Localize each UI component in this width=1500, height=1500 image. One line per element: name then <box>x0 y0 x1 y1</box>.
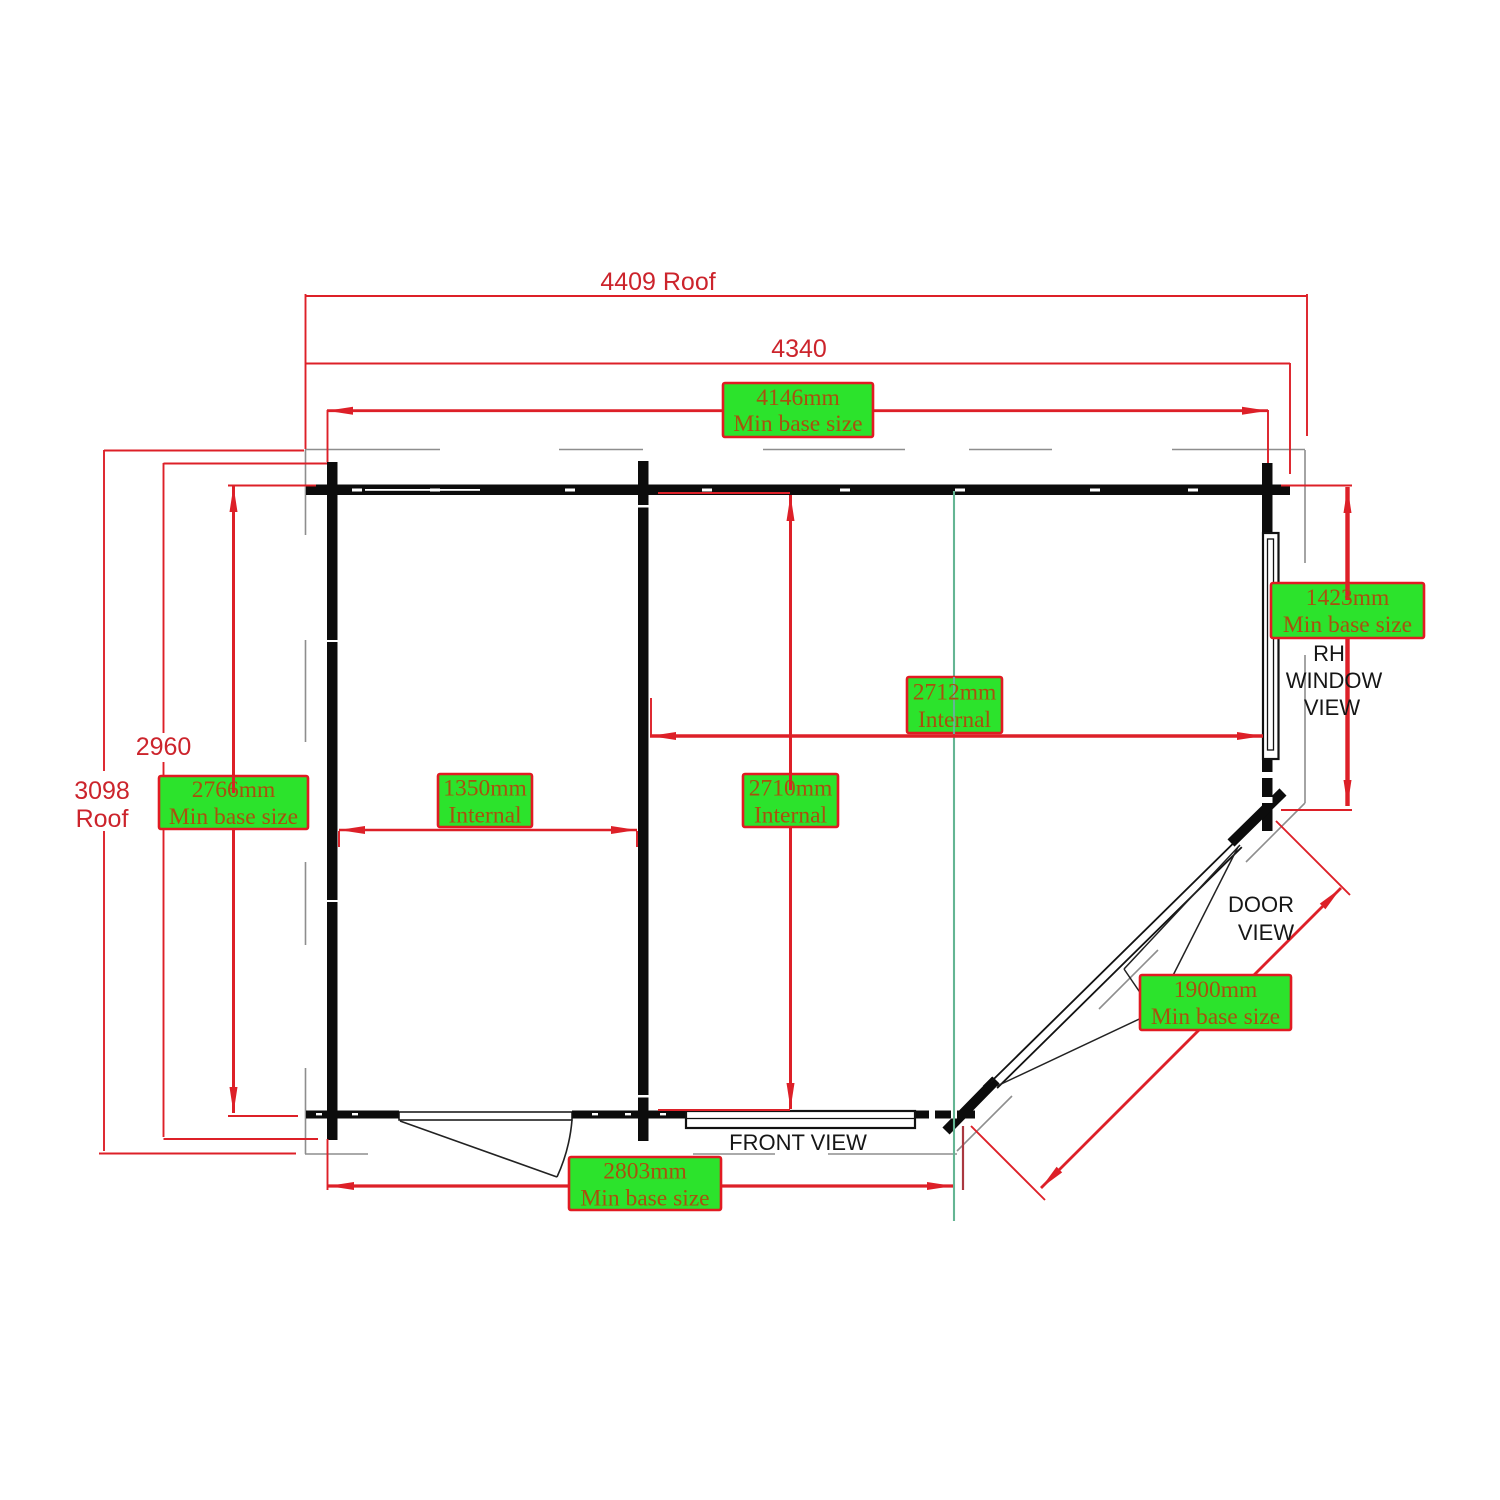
svg-text:4340: 4340 <box>771 335 827 363</box>
svg-text:Min base size: Min base size <box>1283 612 1412 638</box>
svg-text:Internal: Internal <box>448 803 522 829</box>
svg-text:4146mm: 4146mm <box>756 385 840 411</box>
svg-text:4409 Roof: 4409 Roof <box>600 268 715 296</box>
svg-text:2710mm: 2710mm <box>749 776 833 802</box>
svg-text:Min base size: Min base size <box>580 1186 709 1212</box>
svg-text:2803mm: 2803mm <box>603 1159 687 1185</box>
svg-text:Internal: Internal <box>754 803 828 829</box>
svg-text:2766mm: 2766mm <box>192 777 276 803</box>
svg-text:FRONT VIEW: FRONT VIEW <box>729 1130 867 1155</box>
svg-text:2712mm: 2712mm <box>913 680 997 706</box>
svg-text:WINDOW: WINDOW <box>1286 668 1383 693</box>
svg-text:Roof: Roof <box>76 805 129 833</box>
svg-text:1423mm: 1423mm <box>1306 585 1390 611</box>
svg-text:Internal: Internal <box>918 707 992 733</box>
svg-text:1900mm: 1900mm <box>1174 977 1258 1003</box>
svg-text:VIEW: VIEW <box>1304 695 1360 720</box>
svg-text:VIEW: VIEW <box>1238 920 1294 945</box>
svg-text:DOOR: DOOR <box>1228 892 1294 917</box>
svg-text:3098: 3098 <box>74 777 130 805</box>
svg-text:Min base size: Min base size <box>169 804 298 830</box>
svg-text:Min base size: Min base size <box>1151 1004 1280 1030</box>
svg-text:1350mm: 1350mm <box>443 776 527 802</box>
svg-text:2960: 2960 <box>136 733 192 761</box>
svg-text:RH: RH <box>1313 641 1345 666</box>
svg-text:Min base size: Min base size <box>733 411 862 437</box>
